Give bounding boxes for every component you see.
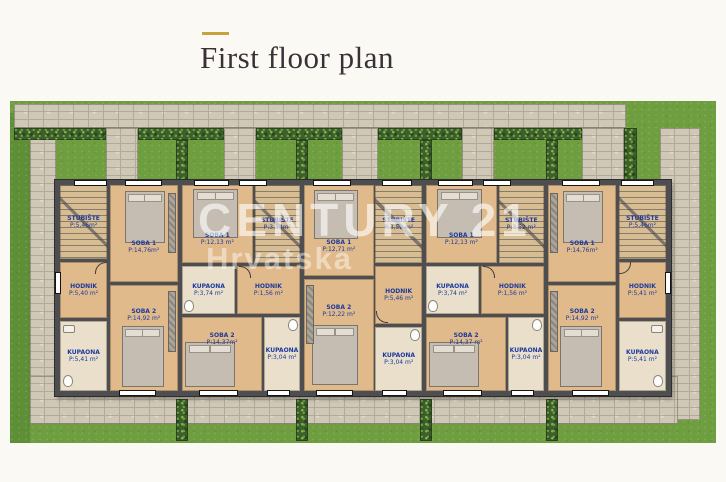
hedge-front-divider-1 bbox=[176, 140, 188, 180]
window bbox=[194, 180, 229, 186]
hedge-back-divider-4 bbox=[546, 399, 558, 441]
entry-path-2 bbox=[224, 128, 256, 180]
walkway-top bbox=[14, 104, 626, 128]
wardrobe bbox=[168, 291, 176, 351]
window bbox=[665, 272, 671, 294]
window bbox=[267, 390, 290, 396]
hedge-row-3 bbox=[256, 128, 342, 140]
room-bedroom-2: SOBA 2 P:14,92 m² bbox=[548, 285, 616, 391]
accent-line bbox=[202, 32, 229, 35]
room-area: P:3,74 m² bbox=[194, 290, 223, 297]
room-area: P:14,92 m² bbox=[566, 315, 599, 322]
room-label: SOBA 2 bbox=[210, 332, 235, 339]
room-area: P:3,52 m² bbox=[384, 224, 413, 231]
room-staircase: STUBIŠTE P:5,46m² bbox=[619, 185, 666, 259]
room-label: HODNIK bbox=[499, 283, 526, 290]
wardrobe bbox=[550, 193, 558, 253]
wardrobe bbox=[550, 291, 558, 351]
room-bathroom-2: KUPAONA P:3,04 m² bbox=[264, 317, 300, 391]
room-area: P:5,46m² bbox=[70, 222, 97, 229]
unit-1: STUBIŠTE P:5,46m² SOBA 1 P:14,76m² HODNI… bbox=[60, 185, 178, 391]
door-arc bbox=[95, 262, 107, 274]
room-area: P:5,41 m² bbox=[628, 356, 657, 363]
unit-4: SOBA 1 P:12,13 m² STUBIŠTE P:3,52 m² KUP… bbox=[426, 185, 544, 391]
bed bbox=[437, 189, 481, 238]
hedge-front-divider-2 bbox=[296, 140, 308, 180]
toilet bbox=[184, 300, 194, 312]
room-bedroom-2: SOBA 2 P:14,37m² bbox=[182, 317, 262, 391]
room-area: P:5,46m² bbox=[629, 222, 656, 229]
hedge-back-divider-1 bbox=[176, 399, 188, 441]
hedge-row-5 bbox=[494, 128, 582, 140]
room-label: KUPAONA bbox=[67, 349, 100, 356]
entry-path-1 bbox=[106, 128, 138, 180]
bed bbox=[560, 326, 602, 386]
toilet bbox=[428, 300, 438, 312]
room-area: P:5,41 m² bbox=[628, 290, 657, 297]
window bbox=[119, 390, 156, 396]
window bbox=[125, 180, 162, 186]
window bbox=[239, 180, 267, 186]
toilet bbox=[653, 375, 663, 387]
entry-path-5 bbox=[582, 128, 624, 180]
window bbox=[382, 390, 408, 396]
room-hallway: HODNIK P:5,40 m² bbox=[60, 262, 107, 318]
room-label: SOBA 2 bbox=[131, 308, 156, 315]
room-label: HODNIK bbox=[255, 283, 282, 290]
window bbox=[199, 390, 239, 396]
room-bathroom-1: KUPAONA P:3,74 m² bbox=[426, 266, 479, 313]
bed bbox=[563, 191, 603, 243]
grass-left-strip bbox=[10, 113, 30, 443]
room-area: P:3,74 m² bbox=[438, 290, 467, 297]
window bbox=[562, 180, 599, 186]
bed bbox=[312, 325, 357, 385]
room-bedroom-1: SOBA 1 P:14,76m² bbox=[110, 185, 178, 282]
room-area: P:1,56 m² bbox=[254, 290, 283, 297]
room-label: SOBA 1 bbox=[131, 240, 156, 247]
window bbox=[621, 180, 654, 186]
room-label: KUPAONA bbox=[382, 352, 415, 359]
door-arc bbox=[376, 311, 388, 323]
wardrobe bbox=[168, 193, 176, 253]
room-area: P:14,37m² bbox=[207, 339, 238, 346]
toilet bbox=[410, 329, 420, 341]
window bbox=[483, 180, 511, 186]
hedge-back-divider-2 bbox=[296, 399, 308, 441]
window bbox=[443, 390, 483, 396]
toilet bbox=[532, 319, 542, 331]
room-label: SOBA 1 bbox=[449, 232, 474, 239]
room-label: SOBA 1 bbox=[570, 240, 595, 247]
door-arc bbox=[619, 262, 631, 274]
window bbox=[511, 390, 534, 396]
hedge-front-divider-3 bbox=[420, 140, 432, 180]
hedge-row-1 bbox=[14, 128, 106, 140]
room-label: HODNIK bbox=[629, 283, 656, 290]
room-label: STUBIŠTE bbox=[67, 215, 100, 222]
window bbox=[572, 390, 609, 396]
bed bbox=[122, 326, 164, 386]
room-bedroom-2: SOBA 2 P:14,37 m² bbox=[426, 317, 506, 391]
room-bedroom-1: SOBA 1 P:14,76m² bbox=[548, 185, 616, 282]
room-area: P:5,41 m² bbox=[69, 356, 98, 363]
entry-path-3 bbox=[342, 128, 378, 180]
window bbox=[55, 272, 61, 294]
bed bbox=[193, 189, 237, 238]
window bbox=[74, 180, 107, 186]
room-bathroom: KUPAONA P:3,04 m² bbox=[375, 327, 422, 391]
window bbox=[313, 180, 350, 186]
door-arc bbox=[239, 266, 251, 278]
room-area: P:14,76m² bbox=[128, 247, 159, 254]
room-area: P:14,37 m² bbox=[450, 339, 483, 346]
room-hallway: HODNIK P:1,56 m² bbox=[481, 266, 544, 313]
room-hallway: HODNIK P:5,46 m² bbox=[375, 266, 422, 324]
room-area: P:12,71 m² bbox=[322, 246, 355, 253]
room-area: P:14,92 m² bbox=[127, 315, 160, 322]
hedge-front-divider-4 bbox=[546, 140, 558, 180]
room-bedroom-1: SOBA 1 P:12,71 m² bbox=[304, 185, 374, 276]
room-label: STUBIŠTE bbox=[382, 217, 415, 224]
door-arc bbox=[483, 266, 495, 278]
room-label: SOBA 2 bbox=[570, 308, 595, 315]
room-label: HODNIK bbox=[70, 283, 97, 290]
building-block: STUBIŠTE P:5,46m² SOBA 1 P:14,76m² HODNI… bbox=[55, 180, 671, 396]
bed bbox=[125, 191, 165, 243]
room-label: HODNIK bbox=[385, 288, 412, 295]
hedge-row-2 bbox=[138, 128, 224, 140]
room-staircase: STUBIŠTE P:3,52 m² bbox=[499, 185, 544, 263]
room-staircase: STUBIŠTE P:5,46m² bbox=[60, 185, 107, 259]
room-label: STUBIŠTE bbox=[261, 217, 294, 224]
room-label: SOBA 2 bbox=[326, 304, 351, 311]
room-staircase: STUBIŠTE P:3,52 m² bbox=[375, 185, 422, 263]
room-label: STUBIŠTE bbox=[626, 215, 659, 222]
room-area: P:3,04 m² bbox=[384, 359, 413, 366]
bed bbox=[185, 342, 235, 387]
room-staircase: STUBIŠTE P:3,53m² bbox=[255, 185, 300, 263]
toilet bbox=[63, 375, 73, 387]
toilet bbox=[288, 319, 298, 331]
room-label: SOBA 1 bbox=[205, 232, 230, 239]
room-area: P:3,04 m² bbox=[267, 354, 296, 361]
wardrobe bbox=[306, 285, 314, 343]
room-label: STUBIŠTE bbox=[505, 217, 538, 224]
room-label: KUPAONA bbox=[436, 283, 469, 290]
room-area: P:3,52 m² bbox=[507, 224, 536, 231]
room-bathroom-1: KUPAONA P:3,74 m² bbox=[182, 266, 235, 313]
room-area: P:5,46 m² bbox=[384, 295, 413, 302]
room-bathroom: KUPAONA P:5,41 m² bbox=[619, 321, 666, 391]
room-label: SOBA 1 bbox=[326, 239, 351, 246]
room-area: P:12,13 m² bbox=[445, 239, 478, 246]
room-label: KUPAONA bbox=[510, 347, 543, 354]
room-area: P:12,22 m² bbox=[322, 311, 355, 318]
room-label: KUPAONA bbox=[192, 283, 225, 290]
room-bathroom-2: KUPAONA P:3,04 m² bbox=[508, 317, 544, 391]
floor-plan: STUBIŠTE P:5,46m² SOBA 1 P:14,76m² HODNI… bbox=[10, 101, 716, 443]
sink bbox=[651, 325, 663, 333]
room-label: KUPAONA bbox=[626, 349, 659, 356]
unit-2: SOBA 1 P:12,13 m² STUBIŠTE P:3,53m² KUPA… bbox=[182, 185, 300, 391]
window bbox=[382, 180, 412, 186]
unit-3: SOBA 1 P:12,71 m² STUBIŠTE P:3,52 m² HOD… bbox=[304, 185, 422, 391]
room-label: KUPAONA bbox=[266, 347, 299, 354]
room-area: P:3,04 m² bbox=[511, 354, 540, 361]
room-bedroom-2: SOBA 2 P:12,22 m² bbox=[304, 279, 374, 391]
room-hallway: HODNIK P:1,56 m² bbox=[237, 266, 300, 313]
room-bedroom-1: SOBA 1 P:12,13 m² bbox=[182, 185, 253, 263]
sink bbox=[63, 325, 75, 333]
room-area: P:1,56 m² bbox=[498, 290, 527, 297]
hedge-back-divider-3 bbox=[420, 399, 432, 441]
window bbox=[316, 390, 353, 396]
page-title: First floor plan bbox=[200, 40, 394, 76]
room-label: SOBA 2 bbox=[454, 332, 479, 339]
window bbox=[438, 180, 473, 186]
room-bedroom-2: SOBA 2 P:14,92 m² bbox=[110, 285, 178, 391]
entry-path-4 bbox=[462, 128, 494, 180]
bed bbox=[429, 342, 479, 387]
hedge-row-4 bbox=[378, 128, 462, 140]
room-bedroom-1: SOBA 1 P:12,13 m² bbox=[426, 185, 497, 263]
room-bathroom: KUPAONA P:5,41 m² bbox=[60, 321, 107, 391]
unit-5: SOBA 1 P:14,76m² STUBIŠTE P:5,46m² HODNI… bbox=[548, 185, 666, 391]
room-area: P:14,76m² bbox=[567, 247, 598, 254]
room-area: P:5,40 m² bbox=[69, 290, 98, 297]
room-area: P:3,53m² bbox=[264, 224, 291, 231]
room-area: P:12,13 m² bbox=[201, 239, 234, 246]
bed bbox=[314, 190, 358, 239]
room-hallway: HODNIK P:5,41 m² bbox=[619, 262, 666, 318]
